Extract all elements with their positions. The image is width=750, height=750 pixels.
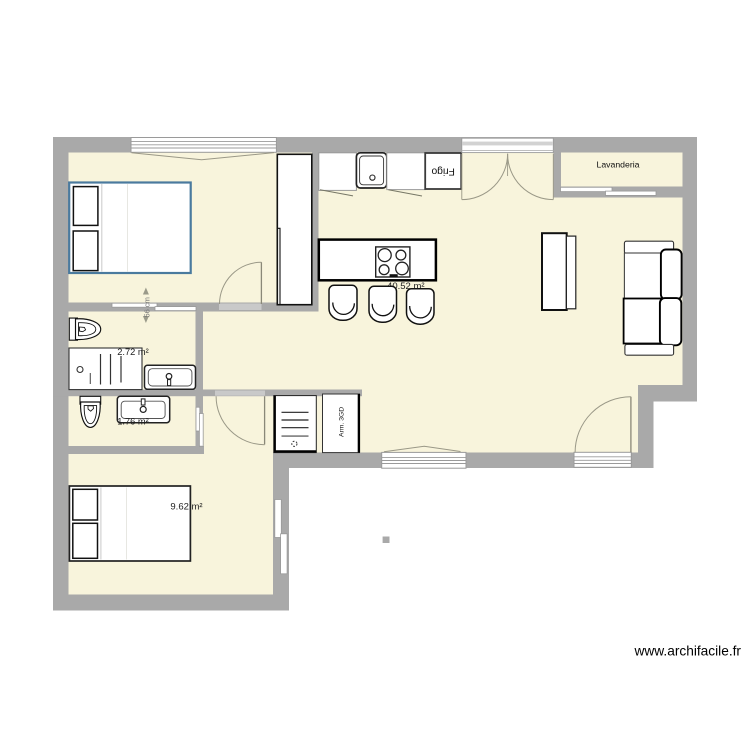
svg-text:1.76 m²: 1.76 m² [117, 417, 149, 427]
svg-text:www.archifacile.fr: www.archifacile.fr [634, 644, 742, 659]
svg-text:Arm. 3GD: Arm. 3GD [339, 407, 346, 437]
svg-text:9.62 m²: 9.62 m² [170, 502, 202, 513]
svg-text:Lavanderia: Lavanderia [597, 160, 640, 170]
svg-text:2.72 m²: 2.72 m² [117, 347, 149, 357]
svg-text:Frigo: Frigo [431, 165, 455, 176]
svg-text:56 cm: 56 cm [142, 297, 151, 317]
